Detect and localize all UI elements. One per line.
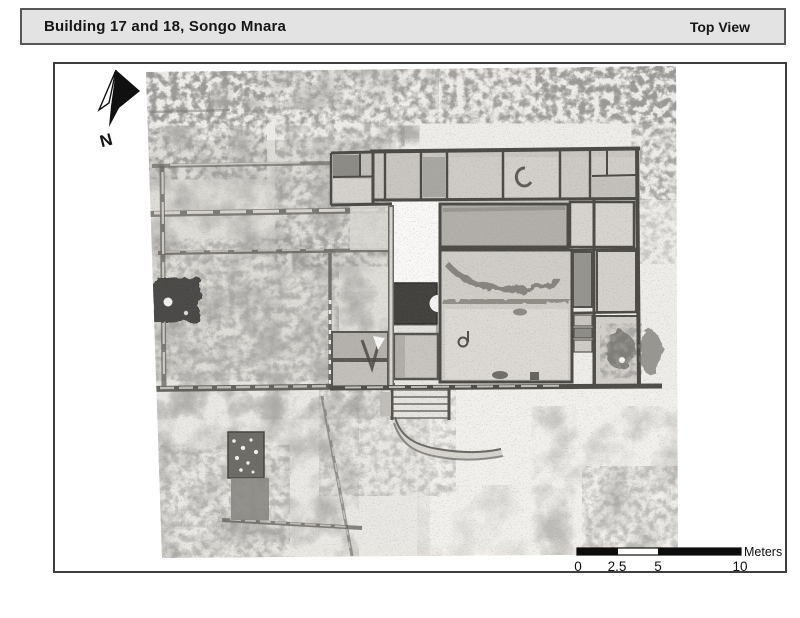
scale-bar-segment-3: [658, 548, 741, 555]
view-label: Top View: [690, 19, 750, 35]
map-frame: N 0 2.5 5 10 Meters: [53, 62, 787, 573]
scale-tick-1: 2.5: [608, 559, 627, 571]
scale-bar: 0 2.5 5 10 Meters: [574, 545, 782, 571]
scale-tick-3: 10: [732, 559, 747, 571]
scale-tick-2: 5: [654, 559, 662, 571]
page-title: Building 17 and 18, Songo Mnara: [44, 18, 286, 35]
scale-unit-label: Meters: [744, 545, 782, 559]
scale-bar-segment-1: [577, 548, 618, 555]
grain-overlay: [146, 66, 678, 558]
orthophoto-content: [146, 64, 685, 560]
orthophoto-map: N 0 2.5 5 10 Meters: [55, 64, 785, 571]
north-arrow: N: [98, 70, 140, 151]
header-bar: Building 17 and 18, Songo Mnara Top View: [20, 8, 786, 45]
north-label: N: [98, 130, 115, 152]
scale-tick-0: 0: [574, 559, 582, 571]
figure-page: Building 17 and 18, Songo Mnara Top View: [0, 0, 800, 618]
